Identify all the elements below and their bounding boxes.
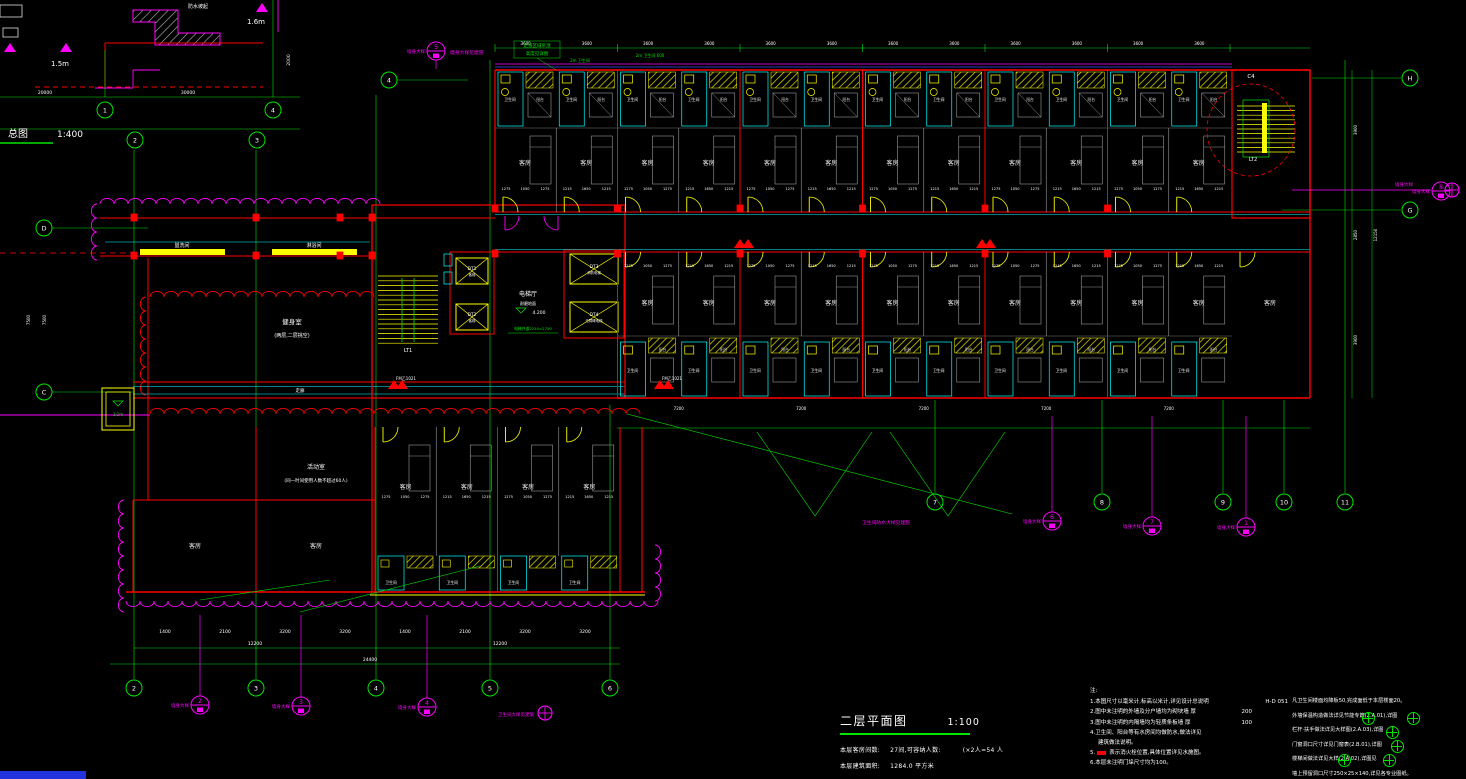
detail-callout-label: 墙身大样 bbox=[1023, 518, 1041, 525]
cad-text: 7500 bbox=[42, 314, 47, 325]
guest-room-module: 客房127510501275卫生间 bbox=[375, 427, 433, 592]
detail-callout: 1 bbox=[1237, 518, 1255, 536]
cad-text: 1275 bbox=[1114, 264, 1123, 268]
room-label: 客房 bbox=[583, 483, 595, 491]
notes-column-left: 注: 1.本图尺寸以毫米计,标高以米计,详见设计总说明H-D 0512.图中未注… bbox=[1090, 686, 1288, 769]
annotation: 2m 卫生间 600 bbox=[636, 52, 665, 58]
cad-text: 1215 bbox=[724, 187, 733, 191]
room-label: 卫生间 bbox=[688, 368, 700, 373]
grid-bubble-label: 3 bbox=[254, 684, 258, 692]
cad-text: 1215 bbox=[443, 495, 452, 499]
site-plan-label: 总图 bbox=[8, 127, 28, 140]
cad-text: 20000 bbox=[38, 90, 52, 96]
room-label: 卫生间 bbox=[872, 368, 884, 373]
detail-callout-label: 墙身大样 bbox=[171, 702, 189, 709]
cad-text: 1275 bbox=[747, 264, 756, 268]
cad-text: 2850 bbox=[1353, 229, 1358, 240]
cad-text: 3200 bbox=[339, 629, 351, 635]
guest-room-module: 卫生间阳台客房127510501275 bbox=[988, 72, 1043, 212]
grid-bubble-label: 5 bbox=[488, 684, 492, 692]
room-label: 客房 bbox=[189, 542, 201, 550]
room-label: 卫生间 bbox=[627, 368, 639, 373]
grid-bubble-label: 8 bbox=[1100, 498, 1104, 506]
cad-text: 1275 bbox=[502, 187, 511, 191]
cad-text: 1650 bbox=[1194, 264, 1203, 268]
cad-text: 1400 bbox=[399, 629, 411, 635]
grid-bubble: 4 bbox=[265, 102, 281, 118]
stair-label: LT1 bbox=[404, 348, 412, 354]
guest-room-module: 卫生间阳台客房121516501215 bbox=[804, 72, 859, 212]
cad-text: 1650 bbox=[584, 495, 593, 499]
cad-text: 1215 bbox=[1214, 264, 1223, 268]
note-line: 2.图中未注明的外墙及分户墙均为砌块墙 厚200 bbox=[1090, 707, 1288, 717]
room-label: 健身室 bbox=[282, 317, 302, 326]
room-label: 客房 bbox=[825, 159, 837, 167]
room-label: 阳台 bbox=[536, 97, 544, 102]
room-label: 阳台 bbox=[781, 347, 789, 352]
note-line: 3.图中未注明的内隔墙均为轻质条板墙 厚100 bbox=[1090, 718, 1288, 728]
cad-text: 卫生间 bbox=[508, 580, 520, 585]
notes-left-list: 1.本图尺寸以毫米计,标高以米计,详见设计总说明H-D 0512.图中未注明的外… bbox=[1090, 697, 1288, 768]
room-sublabel: 耐磨地面 bbox=[520, 300, 536, 306]
stat2-value: 1284.0 平方米 bbox=[890, 761, 934, 770]
cad-text: 1215 bbox=[602, 187, 611, 191]
room-label: 客房 bbox=[1009, 159, 1021, 167]
cad-text: 3200 bbox=[279, 629, 291, 635]
room-label: 阳台 bbox=[1149, 97, 1157, 102]
cad-text: 卫生间 bbox=[569, 580, 581, 585]
grid-bubble: 10 bbox=[1276, 494, 1292, 510]
cad-text: 3600 bbox=[1011, 41, 1022, 46]
guest-room-module: 121516501215客房卫生间阳台 bbox=[804, 252, 859, 396]
cad-text: 6 bbox=[1050, 514, 1054, 521]
room-label: 客房 bbox=[310, 542, 322, 550]
notes-column-right: 凡卫生间楼面均降板50,完成面低于本层楼面20。外墙保温构造做法详见节能专篇(2… bbox=[1292, 694, 1464, 779]
grid-bubble-label: 4 bbox=[374, 684, 378, 692]
cad-text: 1050 bbox=[643, 187, 652, 191]
detail-callout: 6 bbox=[1043, 512, 1061, 530]
elevator-label: DT1 bbox=[467, 266, 476, 272]
detail-callout-label: 墙身大样 bbox=[398, 704, 416, 711]
cad-drawing-canvas: 234567891011HGDC414231.5m1.6m防水坡起2000030… bbox=[0, 0, 1466, 779]
grid-lines: 234567891011HGDC41423 bbox=[0, 60, 1418, 696]
room-label: 客房 bbox=[764, 159, 776, 167]
cad-text: 1215 bbox=[685, 187, 694, 191]
room-label: 卫生间 bbox=[994, 97, 1006, 102]
grid-bubble: 3 bbox=[249, 132, 265, 148]
cad-text: 7500 bbox=[26, 314, 31, 325]
cad-text: 12150 bbox=[1373, 228, 1378, 241]
cad-text: 1215 bbox=[847, 187, 856, 191]
grid-bubble: G bbox=[1402, 202, 1418, 218]
annotation: 高度见详图 bbox=[526, 50, 549, 57]
room-label: 客房 bbox=[461, 483, 473, 491]
fire-door-label: FM乙1021 bbox=[396, 375, 416, 381]
annotation: 卫生间防水大样见建施 bbox=[862, 519, 910, 526]
room-label: 阳台 bbox=[842, 347, 850, 352]
notes-heading: 注: bbox=[1090, 686, 1288, 696]
title-block: 二层平面图 1:100 本层客房间数: 27间,可容纳人数: (×2人=54 人… bbox=[840, 712, 1095, 777]
room-sublabel: (同一时间使用人数不超过60人) bbox=[284, 477, 347, 484]
room-label: 阳台 bbox=[1149, 347, 1157, 352]
cad-text: 7 bbox=[1150, 519, 1154, 526]
room-label: 客房 bbox=[1131, 159, 1143, 167]
cad-text: 1 bbox=[1244, 520, 1248, 527]
cad-text: 1215 bbox=[1214, 187, 1223, 191]
elevator-sublabel: 消防电梯 bbox=[587, 270, 601, 275]
index-circle-icon bbox=[1338, 754, 1351, 767]
drawing-stats: 本层客房间数: 27间,可容纳人数: (×2人=54 人 本层建筑面积: 128… bbox=[840, 745, 1095, 770]
guest-room-module: 卫生间阳台客房127510501275 bbox=[621, 72, 676, 212]
drawing-scale: 1:100 bbox=[948, 717, 980, 728]
detail-callout-label: 墙身大样 bbox=[272, 703, 290, 710]
index-circle-icon bbox=[1386, 726, 1399, 739]
elevator-sublabel: 客梯 bbox=[469, 272, 476, 277]
stat1-label: 本层客房间数: bbox=[840, 745, 880, 754]
guest-room-module: 卫生间阳台客房121516501215 bbox=[927, 72, 982, 212]
room-label: 走廊 bbox=[296, 387, 305, 394]
cad-text: 卫生间 bbox=[385, 580, 397, 585]
cad-text: 1650 bbox=[827, 187, 836, 191]
room-label: 阳台 bbox=[965, 97, 973, 102]
guest-room-module: 卫生间阳台客房127510501275 bbox=[498, 72, 553, 212]
cad-text: 1275 bbox=[992, 187, 1001, 191]
room-label: 卫生间 bbox=[627, 97, 639, 102]
elevator-core: DT1客梯DT2客梯DT3消防电梯DT4无障碍电梯电梯厅耐磨地面4.200电梯井… bbox=[372, 205, 625, 398]
window-label: C4 bbox=[1247, 74, 1255, 80]
cad-text: 1215 bbox=[685, 264, 694, 268]
room-label: 阳台 bbox=[904, 97, 912, 102]
cad-text: 1650 bbox=[582, 187, 591, 191]
cad-text: 1275 bbox=[624, 187, 633, 191]
guest-room-module: 卫生间阳台客房121516501215 bbox=[1172, 72, 1227, 212]
note-line: 凡卫生间楼面均降板50,完成面低于本层楼面20。 bbox=[1292, 694, 1464, 709]
cad-text: 7200 bbox=[796, 406, 807, 411]
room-label: 客房 bbox=[1264, 299, 1276, 307]
guest-room-module: 卫生间阳台客房127510501275 bbox=[1111, 72, 1166, 212]
detail-callout-label: 墙身大样 bbox=[1123, 523, 1141, 530]
grid-bubble: H bbox=[1402, 70, 1418, 86]
cad-text: 1275 bbox=[1153, 264, 1162, 268]
index-circle-icon bbox=[1362, 712, 1375, 725]
cad-text: 1650 bbox=[704, 264, 713, 268]
room-label: 客房 bbox=[1070, 159, 1082, 167]
room-label: 卫生间 bbox=[933, 97, 945, 102]
detail-callout-label: 墙身大样 bbox=[1395, 181, 1413, 188]
cad-text: 3600 bbox=[1133, 41, 1144, 46]
left-wing: 盥洗间淋浴间健身室(两层,二层挑空)走廊活动室(同一时间使用人数不超过60人)客… bbox=[0, 198, 661, 612]
room-label: 卫生间 bbox=[566, 97, 578, 102]
cad-text: 1215 bbox=[847, 264, 856, 268]
cad-text: 1050 bbox=[521, 187, 530, 191]
note-line: 1.本图尺寸以毫米计,标高以米计,详见设计总说明H-D 051 bbox=[1090, 697, 1288, 707]
detail-callout: 5 bbox=[427, 42, 445, 60]
cad-text: 1275 bbox=[382, 495, 391, 499]
room-label: 阳台 bbox=[842, 97, 850, 102]
index-circle-icon bbox=[1391, 740, 1404, 753]
cad-text: 12200 bbox=[248, 641, 262, 647]
room-label: 客房 bbox=[1193, 159, 1205, 167]
room-label: 卫生间 bbox=[1056, 368, 1068, 373]
cad-text: 5 bbox=[434, 44, 438, 51]
bottom-blue-bar bbox=[0, 771, 86, 779]
cad-text: 1215 bbox=[969, 187, 978, 191]
guest-room-module: 客房127510501275卫生间 bbox=[498, 427, 556, 592]
detail-callout-label: 墙身大样 bbox=[1217, 524, 1235, 531]
cad-text: 7200 bbox=[1164, 406, 1175, 411]
guest-room-module: 客房121516501215卫生间 bbox=[436, 427, 494, 590]
cad-text: 1215 bbox=[969, 264, 978, 268]
detail-callout: 7 bbox=[1143, 517, 1161, 535]
cad-text: 2 bbox=[198, 698, 202, 705]
room-label: 客房 bbox=[641, 299, 653, 307]
cad-text: 1275 bbox=[1153, 187, 1162, 191]
cad-text: 1275 bbox=[869, 187, 878, 191]
grid-bubble-label: 2 bbox=[133, 136, 137, 144]
cad-text: 1275 bbox=[1031, 264, 1040, 268]
guest-room-module: 127510501275客房卫生间阳台 bbox=[743, 252, 798, 396]
site-note: 防水坡起 bbox=[188, 3, 208, 10]
cad-text: 3600 bbox=[704, 41, 715, 46]
note-line: 建筑做法说明。 bbox=[1090, 738, 1288, 748]
detail-callout: 2 bbox=[191, 696, 209, 714]
cad-text: 2100 bbox=[219, 629, 231, 635]
guest-room-module: 卫生间阳台客房121516501215 bbox=[682, 72, 737, 212]
cad-text: 1275 bbox=[869, 264, 878, 268]
site-plan-scale: 1:400 bbox=[57, 130, 83, 140]
elevator-DT4: DT4无障碍电梯 bbox=[570, 302, 618, 332]
note-line: 4.卫生间、阳台等有水房间均做防水,做法详见 bbox=[1090, 728, 1288, 738]
cad-text: 1275 bbox=[1114, 187, 1123, 191]
cad-text: 1215 bbox=[565, 495, 574, 499]
detail-callout: 3 bbox=[292, 697, 310, 715]
room-label: 电梯厅 bbox=[519, 290, 537, 298]
note-line: 门窗洞口尺寸详见门窗表(2.B.01),详图 bbox=[1292, 738, 1464, 753]
grid-bubble: 2 bbox=[127, 132, 143, 148]
grid-bubble-label: 4 bbox=[271, 106, 275, 114]
cad-text: 1650 bbox=[1194, 187, 1203, 191]
cad-text: 7200 bbox=[1041, 406, 1052, 411]
room-label: 卫生间 bbox=[994, 368, 1006, 373]
room-label: 卫生间 bbox=[1117, 97, 1129, 102]
room-label: 客房 bbox=[641, 159, 653, 167]
cad-text: 1050 bbox=[643, 264, 652, 268]
room-label: 阳台 bbox=[720, 97, 728, 102]
room-label: 卫生间 bbox=[688, 97, 700, 102]
guest-room-module: 卫生间阳台客房121516501215 bbox=[1049, 72, 1104, 212]
index-circle-icon bbox=[1383, 754, 1396, 767]
cad-text: 1215 bbox=[808, 187, 817, 191]
cad-text: 1050 bbox=[888, 264, 897, 268]
cad-text: 8 bbox=[1439, 184, 1443, 191]
guest-room-module: 127510501275客房卫生间阳台 bbox=[621, 252, 676, 396]
grid-bubble: 4 bbox=[368, 680, 384, 696]
room-label: 阳台 bbox=[659, 347, 667, 352]
grid-bubble-label: 3 bbox=[255, 136, 259, 144]
note-line: 楼梯间做法详见大样(2.A.02),详图见 bbox=[1292, 752, 1464, 767]
grid-bubble: 6 bbox=[602, 680, 618, 696]
annotation: 2m 卫生间 bbox=[570, 57, 590, 63]
room-label: 阳台 bbox=[720, 347, 728, 352]
grid-bubble-label: 4 bbox=[387, 76, 391, 84]
grid-bubble-label: G bbox=[1407, 206, 1412, 214]
cad-text: 1050 bbox=[766, 264, 775, 268]
guest-room-module: 127510501275客房卫生间阳台 bbox=[988, 252, 1043, 396]
cad-text: 2000 bbox=[286, 54, 292, 66]
room-label: 阳台 bbox=[965, 347, 973, 352]
guest-room-module: 121516501215客房卫生间阳台 bbox=[1172, 252, 1227, 396]
guest-room-module: 121516501215客房卫生间阳台 bbox=[927, 252, 982, 396]
guest-room-module: 127510501275客房卫生间阳台 bbox=[1111, 252, 1166, 396]
grid-bubble: D bbox=[36, 220, 52, 236]
grid-bubble-label: 1 bbox=[103, 106, 107, 114]
cad-text: 1050 bbox=[766, 187, 775, 191]
room-label: 淋浴间 bbox=[306, 242, 321, 249]
cad-text: 1215 bbox=[604, 495, 613, 499]
site-key-plan: 1.5m1.6m防水坡起20000300002000总图1:400 bbox=[0, 0, 292, 143]
cad-text: 3600 bbox=[1072, 41, 1083, 46]
room-label: 客房 bbox=[886, 299, 898, 307]
cad-text: 1650 bbox=[704, 187, 713, 191]
cad-text: 1215 bbox=[724, 264, 733, 268]
room-label: 客房 bbox=[948, 159, 960, 167]
room-label: 客房 bbox=[580, 159, 592, 167]
room-label: 客房 bbox=[522, 483, 534, 491]
title-underline bbox=[840, 733, 970, 735]
cad-text: 1650 bbox=[1072, 264, 1081, 268]
cad-text: 1.2m bbox=[113, 412, 123, 417]
notes-right-list: 凡卫生间楼面均降板50,完成面低于本层楼面20。外墙保温构造做法详见节能专篇(2… bbox=[1292, 694, 1464, 779]
cad-text: 1050 bbox=[401, 495, 410, 499]
cad-text: 3600 bbox=[643, 41, 654, 46]
cad-text: 1275 bbox=[624, 264, 633, 268]
detail-callout-label: 墙身大样 bbox=[407, 48, 425, 55]
cad-text: 1275 bbox=[543, 495, 552, 499]
level-label: 1.5m bbox=[51, 60, 69, 68]
room-label: 客房 bbox=[764, 299, 776, 307]
cad-text: 3600 bbox=[949, 41, 960, 46]
room-label: 客房 bbox=[400, 483, 412, 491]
room-label: 客房 bbox=[948, 299, 960, 307]
room-label: 卫生间 bbox=[1178, 368, 1190, 373]
cad-text: 1050 bbox=[523, 495, 532, 499]
floor-plan-canvas: 234567891011HGDC414231.5m1.6m防水坡起2000030… bbox=[0, 0, 1466, 779]
cad-text: 30000 bbox=[181, 90, 195, 96]
grid-bubble: 7 bbox=[927, 494, 943, 510]
cad-text: 3600 bbox=[766, 41, 777, 46]
note-line: 6.本层未注明门垛尺寸均为100。 bbox=[1090, 758, 1288, 768]
room-label: 卫生间 bbox=[1117, 368, 1129, 373]
room-label: 阳台 bbox=[1087, 97, 1095, 102]
cad-text: 3600 bbox=[582, 41, 593, 46]
cad-text: 1215 bbox=[930, 264, 939, 268]
note-line: 5.表示消火栓位置,具体位置详见水施图。 bbox=[1090, 748, 1288, 758]
guest-room-module: 卫生间阳台客房127510501275 bbox=[743, 72, 798, 212]
index-circle-icon bbox=[1407, 712, 1420, 725]
cad-text: 3600 bbox=[827, 41, 838, 46]
cad-text: 1275 bbox=[786, 264, 795, 268]
room-label: 阳台 bbox=[597, 97, 605, 102]
grid-bubble-label: H bbox=[1408, 74, 1413, 82]
annotation: 卫生间大样见建施 bbox=[498, 711, 534, 718]
cad-text: 3900 bbox=[1353, 334, 1358, 345]
room-label: 阳台 bbox=[1210, 347, 1218, 352]
room-label: 阳台 bbox=[781, 97, 789, 102]
cad-text: 1275 bbox=[908, 264, 917, 268]
cad-text: 1050 bbox=[1133, 264, 1142, 268]
annotation: 电梯井道2250×2750 bbox=[514, 326, 552, 331]
room-label: 阳台 bbox=[904, 347, 912, 352]
room-label: 阳台 bbox=[1087, 347, 1095, 352]
room-label: 卫生间 bbox=[933, 368, 945, 373]
grid-bubble-label: D bbox=[41, 224, 46, 232]
cad-text: 1050 bbox=[1133, 187, 1142, 191]
detail-callout: 4 bbox=[418, 698, 436, 716]
room-label: 卫生间 bbox=[1178, 97, 1190, 102]
cad-text: 1050 bbox=[1011, 264, 1020, 268]
cad-text: 1215 bbox=[1053, 187, 1062, 191]
drawing-title: 二层平面图 bbox=[840, 712, 908, 729]
grid-bubble: C bbox=[36, 384, 52, 400]
room-label: 卫生间 bbox=[749, 368, 761, 373]
cad-text: 4 bbox=[425, 700, 429, 707]
room-label: 阳台 bbox=[1026, 347, 1034, 352]
note-line: 栏杆·扶手做法详见大样图(2.A.03),详图 bbox=[1292, 723, 1464, 738]
guest-room-module: 121516501215客房卫生间阳台 bbox=[682, 252, 737, 396]
room-label: 客房 bbox=[703, 299, 715, 307]
cad-text: 1215 bbox=[1175, 187, 1184, 191]
room-sublabel: (两层,二层挑空) bbox=[274, 332, 310, 339]
grid-bubble-label: C bbox=[42, 388, 47, 396]
cad-text: 24400 bbox=[363, 657, 377, 663]
target-symbol-icon bbox=[538, 706, 552, 720]
elevator-sublabel: 客梯 bbox=[469, 318, 476, 323]
grid-bubble: 4 bbox=[381, 72, 397, 88]
room-label: 卫生间 bbox=[504, 97, 516, 102]
room-label: 阳台 bbox=[659, 97, 667, 102]
guest-room-module: 127510501275客房卫生间阳台 bbox=[866, 252, 921, 396]
cad-text: 1215 bbox=[930, 187, 939, 191]
room-label: 卫生间 bbox=[749, 97, 761, 102]
grid-bubble-label: 9 bbox=[1221, 498, 1225, 506]
grid-bubble: 8 bbox=[1094, 494, 1110, 510]
cad-text: 1215 bbox=[1053, 264, 1062, 268]
cad-text: 1215 bbox=[1175, 264, 1184, 268]
grid-bubble: 9 bbox=[1215, 494, 1231, 510]
cad-text: 1215 bbox=[808, 264, 817, 268]
cad-text: 1275 bbox=[663, 264, 672, 268]
room-label: 客房 bbox=[1193, 299, 1205, 307]
cad-text: 1400 bbox=[159, 629, 171, 635]
grid-bubble: 2 bbox=[126, 680, 142, 696]
room-label: 客房 bbox=[703, 159, 715, 167]
detail-callout-label: 墙身大样 bbox=[1412, 188, 1430, 195]
cad-text: 1215 bbox=[482, 495, 491, 499]
stat1-value: 27间,可容纳人数: bbox=[890, 745, 941, 754]
cad-text: 3200 bbox=[579, 629, 591, 635]
cad-text: 1650 bbox=[827, 264, 836, 268]
cad-text: 1050 bbox=[888, 187, 897, 191]
cad-text: 1275 bbox=[992, 264, 1001, 268]
cad-text: 1650 bbox=[949, 187, 958, 191]
cad-text: 1275 bbox=[1031, 187, 1040, 191]
guest-room-module: 卫生间阳台客房127510501275 bbox=[866, 72, 921, 212]
cad-text: 1650 bbox=[462, 495, 471, 499]
cad-text: 3600 bbox=[1194, 41, 1205, 46]
annotation: 走道区域吊顶 bbox=[524, 42, 551, 49]
cad-text: 2100 bbox=[459, 629, 471, 635]
room-label: 活动室 bbox=[307, 463, 325, 471]
